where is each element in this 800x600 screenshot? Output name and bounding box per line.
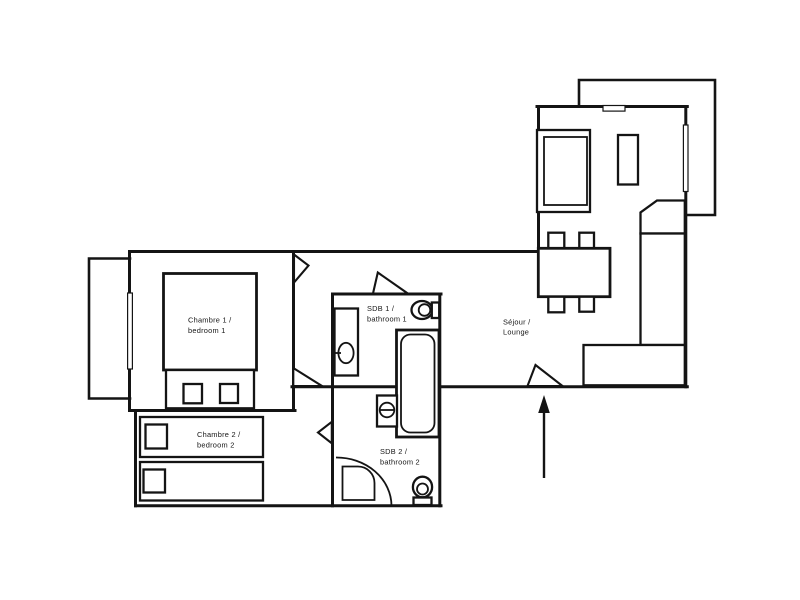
- toilet2-seat: [417, 484, 428, 495]
- door-swing-entrance: [528, 365, 563, 386]
- shower-tray: [343, 467, 375, 501]
- dining-table: [538, 248, 610, 296]
- floor-plan-drawing: Chambre 1 / bedroom 1 Chambre 2 / bedroo…: [0, 0, 800, 600]
- door-swing-bathroom1: [373, 273, 408, 294]
- label-bathroom1-line1: SDB 1 /: [367, 304, 395, 313]
- label-bathroom2-line2: bathroom 2: [380, 458, 420, 467]
- label-bedroom2-line1: Chambre 2 /: [197, 430, 241, 439]
- label-bedroom2-line2: bedroom 2: [197, 441, 235, 450]
- dining-chair-top-right: [579, 233, 594, 249]
- bed-pillow-left: [184, 384, 203, 403]
- bed-pillow-right: [220, 384, 238, 403]
- label-bedroom1-line2: bedroom 1: [188, 326, 226, 335]
- dining-chair-top-left: [548, 233, 564, 249]
- corner-sofa-seat: [584, 345, 685, 385]
- door-swing-bedroom1: [294, 255, 309, 283]
- bed-single-2-pillow: [144, 470, 166, 493]
- toilet1-seat: [419, 304, 431, 316]
- door-swing-bathroom2: [318, 422, 332, 444]
- label-bathroom2-line1: SDB 2 /: [380, 447, 408, 456]
- window-bedroom1: [128, 293, 133, 369]
- corner-sofa-chaise: [641, 201, 685, 234]
- bedroom1-furniture: [164, 274, 257, 409]
- shelf-unit: [618, 135, 638, 185]
- tv-cabinet-inner: [544, 137, 587, 205]
- window-lounge-right: [683, 125, 688, 192]
- corner-sofa-back: [641, 234, 685, 346]
- label-bathroom1-line2: bathroom 1: [367, 315, 407, 324]
- bed-double-foot: [166, 370, 254, 408]
- label-lounge-line1: Séjour /: [503, 318, 531, 327]
- bathtub-inner: [401, 335, 435, 433]
- entrance-arrow: [538, 395, 550, 478]
- window-lounge-top: [603, 106, 625, 112]
- lounge-furniture: [537, 130, 685, 385]
- toilet1-tank: [432, 303, 439, 319]
- bed-single-1-pillow: [146, 425, 168, 449]
- label-bedroom1-line1: Chambre 1 /: [188, 316, 232, 325]
- floor-plan: Chambre 1 / bedroom 1 Chambre 2 / bedroo…: [0, 0, 800, 600]
- terrace-lounge: [579, 80, 715, 215]
- dining-chair-bottom-right: [579, 297, 594, 312]
- door-swing-bedroom2: [293, 368, 322, 386]
- entrance-arrow-head: [538, 395, 550, 413]
- balcony-bedroom1: [89, 259, 130, 399]
- label-lounge-line2: Lounge: [503, 328, 529, 337]
- dining-chair-bottom-left: [548, 297, 564, 313]
- toilet2-base: [414, 498, 432, 506]
